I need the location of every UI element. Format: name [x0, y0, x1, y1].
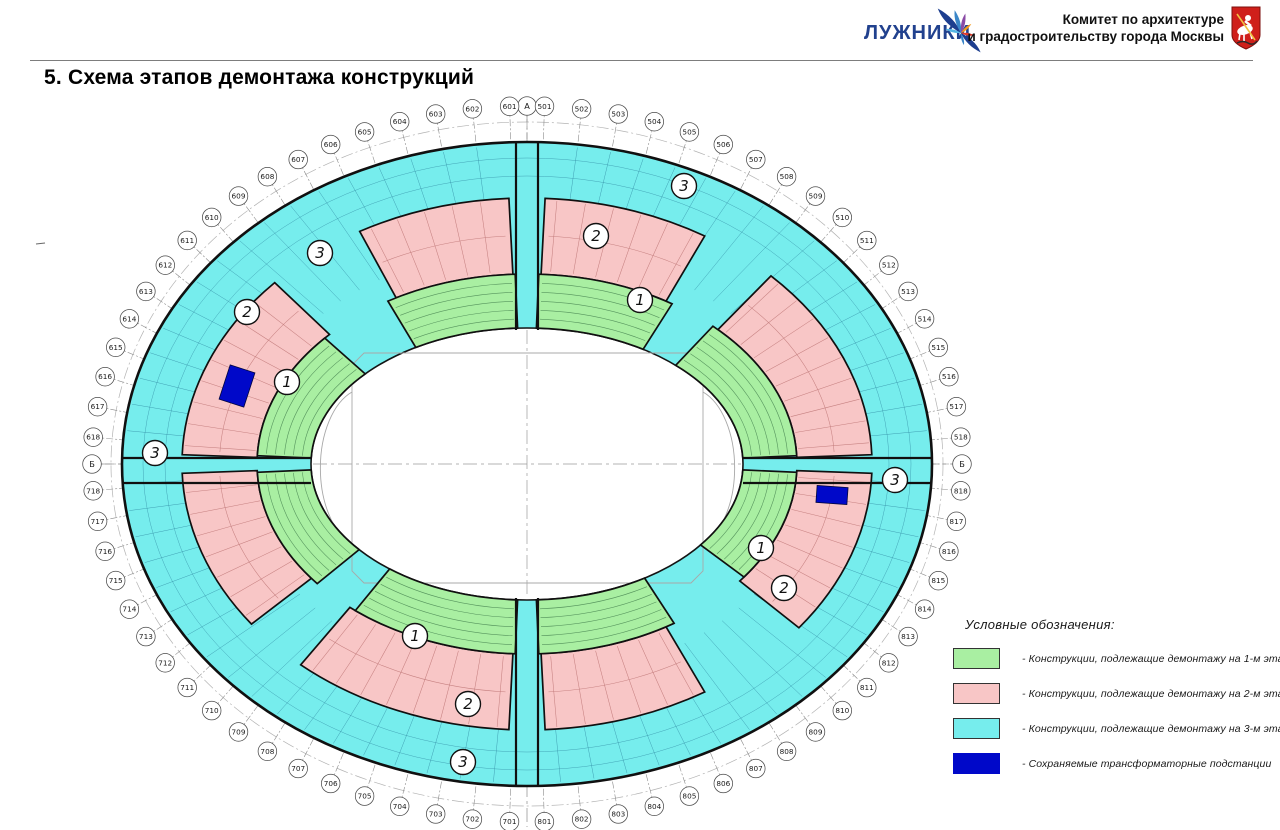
svg-text:508: 508	[780, 172, 794, 181]
axis-marker-614: 614	[120, 310, 139, 329]
legend-item-label: - Сохраняемые трансформаторные подстанци…	[1022, 758, 1271, 770]
svg-text:3: 3	[679, 177, 689, 195]
axis-marker-507: 507	[747, 150, 766, 169]
svg-text:710: 710	[205, 706, 219, 715]
svg-text:1: 1	[756, 539, 766, 557]
svg-text:811: 811	[860, 683, 874, 692]
legend-item-3: - Конструкции, подлежащие демонтажу на 3…	[953, 718, 1280, 738]
axis-marker-811: 811	[858, 678, 877, 697]
svg-text:801: 801	[537, 817, 551, 826]
legend-item-2: - Конструкции, подлежащие демонтажу на 2…	[953, 683, 1280, 703]
svg-text:713: 713	[139, 632, 153, 641]
axis-marker-805: 805	[680, 787, 699, 806]
svg-text:708: 708	[260, 747, 274, 756]
svg-text:602: 602	[465, 104, 479, 113]
svg-text:707: 707	[291, 764, 305, 773]
zone-label-stage2: 2	[772, 576, 797, 601]
axis-marker-501: 501	[535, 97, 554, 116]
demolition-stages-plan: 1111222233333А50150250350450550650750850…	[0, 0, 1280, 830]
legend-swatch-3	[953, 718, 1000, 739]
svg-text:504: 504	[647, 117, 661, 126]
svg-text:712: 712	[158, 658, 172, 667]
zone-label-stage1: 1	[749, 536, 774, 561]
axis-marker-804: 804	[645, 797, 664, 816]
svg-text:703: 703	[429, 810, 443, 819]
svg-text:816: 816	[942, 547, 956, 556]
svg-text:609: 609	[232, 192, 246, 201]
svg-text:606: 606	[324, 140, 338, 149]
axis-marker-803: 803	[609, 805, 628, 824]
axis-marker-703: 703	[426, 805, 445, 824]
axis-marker-503: 503	[609, 105, 628, 124]
axis-marker-514: 514	[915, 310, 934, 329]
axis-marker-Б: Б	[953, 455, 972, 474]
axis-marker-509: 509	[806, 187, 825, 206]
svg-text:603: 603	[429, 110, 443, 119]
svg-text:705: 705	[358, 792, 372, 801]
legend-swatch-4	[953, 753, 1000, 774]
svg-text:806: 806	[716, 779, 730, 788]
axis-marker-611: 611	[178, 231, 197, 250]
svg-text:513: 513	[901, 287, 915, 296]
svg-text:812: 812	[882, 658, 896, 667]
axis-marker-607: 607	[289, 150, 308, 169]
legend-item-label: - Конструкции, подлежащие демонтажу на 3…	[1022, 723, 1280, 735]
axis-marker-707: 707	[289, 759, 308, 778]
svg-text:716: 716	[98, 547, 112, 556]
svg-text:601: 601	[503, 102, 517, 111]
svg-text:3: 3	[150, 444, 160, 462]
legend-item-1: - Конструкции, подлежащие демонтажу на 1…	[953, 648, 1280, 668]
svg-text:804: 804	[647, 802, 661, 811]
axis-marker-506: 506	[714, 135, 733, 154]
axis-marker-710: 710	[202, 701, 221, 720]
axis-marker-807: 807	[747, 759, 766, 778]
svg-text:709: 709	[232, 727, 246, 736]
zone-label-stage3: 3	[451, 750, 476, 775]
axis-marker-717: 717	[88, 512, 107, 531]
zone-label-stage1: 1	[275, 370, 300, 395]
axis-marker-715: 715	[106, 571, 125, 590]
svg-text:615: 615	[109, 343, 123, 352]
axis-marker-808: 808	[777, 742, 796, 761]
svg-text:506: 506	[716, 140, 730, 149]
axis-marker-817: 817	[947, 512, 966, 531]
svg-text:718: 718	[86, 486, 100, 495]
svg-text:815: 815	[931, 576, 945, 585]
svg-text:514: 514	[918, 314, 932, 323]
legend-item-label: - Конструкции, подлежащие демонтажу на 2…	[1022, 688, 1280, 700]
axis-marker-618: 618	[84, 428, 103, 447]
legend-item-label: - Конструкции, подлежащие демонтажу на 1…	[1022, 653, 1280, 665]
axis-marker-508: 508	[777, 167, 796, 186]
svg-text:1: 1	[410, 627, 420, 645]
svg-text:2: 2	[463, 695, 473, 713]
svg-text:714: 714	[122, 605, 136, 614]
svg-text:512: 512	[882, 261, 896, 270]
svg-text:802: 802	[575, 815, 589, 824]
axis-marker-816: 816	[940, 542, 959, 561]
svg-text:1: 1	[282, 373, 292, 391]
axis-marker-712: 712	[156, 654, 175, 673]
svg-text:3: 3	[890, 471, 900, 489]
axis-marker-704: 704	[390, 797, 409, 816]
svg-text:711: 711	[180, 683, 194, 692]
svg-text:809: 809	[809, 727, 823, 736]
svg-text:616: 616	[98, 372, 112, 381]
svg-text:701: 701	[503, 817, 517, 826]
axis-marker-802: 802	[572, 810, 591, 829]
svg-text:610: 610	[205, 213, 219, 222]
svg-text:706: 706	[324, 779, 338, 788]
axis-marker-602: 602	[463, 100, 482, 119]
axis-marker-814: 814	[915, 600, 934, 619]
legend: Условные обозначения: - Конструкции, под…	[953, 617, 1273, 632]
zone-label-stage3: 3	[672, 174, 697, 199]
axis-marker-518: 518	[952, 428, 971, 447]
axis-marker-А: А	[518, 97, 537, 116]
axis-marker-605: 605	[355, 123, 374, 142]
axis-marker-616: 616	[96, 367, 115, 386]
legend-swatch-2	[953, 683, 1000, 704]
axis-marker-517: 517	[947, 397, 966, 416]
svg-text:3: 3	[458, 753, 468, 771]
axis-marker-609: 609	[229, 187, 248, 206]
axis-marker-504: 504	[645, 112, 664, 131]
axis-marker-812: 812	[879, 654, 898, 673]
axis-marker-608: 608	[258, 167, 277, 186]
zone-label-stage2: 2	[456, 692, 481, 717]
axis-marker-606: 606	[321, 135, 340, 154]
svg-text:702: 702	[465, 815, 479, 824]
axis-marker-813: 813	[899, 627, 918, 646]
svg-text:613: 613	[139, 287, 153, 296]
svg-text:2: 2	[779, 579, 789, 597]
svg-text:605: 605	[358, 127, 372, 136]
svg-text:1: 1	[635, 291, 645, 309]
svg-text:А: А	[524, 101, 530, 111]
axis-marker-604: 604	[390, 112, 409, 131]
axis-marker-708: 708	[258, 742, 277, 761]
svg-text:805: 805	[682, 792, 696, 801]
zone-label-stage2: 2	[584, 224, 609, 249]
zone-label-stage1: 1	[403, 624, 428, 649]
svg-text:510: 510	[835, 213, 849, 222]
svg-text:608: 608	[260, 172, 274, 181]
svg-text:517: 517	[949, 402, 963, 411]
svg-text:817: 817	[949, 517, 963, 526]
axis-marker-502: 502	[572, 100, 591, 119]
substation-rect-east	[816, 485, 848, 504]
zone-label-stage2: 2	[235, 300, 260, 325]
svg-text:516: 516	[942, 372, 956, 381]
svg-text:3: 3	[315, 244, 325, 262]
axis-marker-713: 713	[137, 627, 156, 646]
axis-marker-801: 801	[535, 812, 554, 830]
axis-marker-810: 810	[833, 701, 852, 720]
legend-title: Условные обозначения:	[965, 617, 1273, 632]
axis-marker-612: 612	[156, 256, 175, 275]
axis-marker-512: 512	[880, 256, 899, 275]
zone-label-stage3: 3	[143, 441, 168, 466]
legend-item-4: - Сохраняемые трансформаторные подстанци…	[953, 753, 1271, 773]
svg-text:704: 704	[393, 802, 407, 811]
svg-text:507: 507	[749, 155, 763, 164]
svg-text:Б: Б	[959, 459, 965, 469]
svg-text:502: 502	[575, 104, 589, 113]
axis-marker-603: 603	[426, 105, 445, 124]
svg-text:518: 518	[954, 433, 968, 442]
svg-text:715: 715	[109, 576, 123, 585]
svg-text:2: 2	[591, 227, 601, 245]
axis-marker-615: 615	[106, 338, 125, 357]
axis-marker-702: 702	[463, 810, 482, 829]
axis-marker-513: 513	[899, 282, 918, 301]
axis-marker-718: 718	[84, 482, 103, 501]
zone-label-stage3: 3	[883, 468, 908, 493]
axis-marker-709: 709	[229, 723, 248, 742]
legend-swatch-1	[953, 648, 1000, 669]
axis-marker-613: 613	[137, 282, 156, 301]
axis-marker-806: 806	[714, 774, 733, 793]
axis-marker-511: 511	[858, 231, 877, 250]
zone-label-stage1: 1	[628, 288, 653, 313]
svg-text:807: 807	[749, 764, 763, 773]
svg-text:814: 814	[918, 605, 932, 614]
svg-text:2: 2	[242, 303, 252, 321]
svg-text:618: 618	[86, 433, 100, 442]
axis-marker-815: 815	[929, 571, 948, 590]
axis-marker-706: 706	[321, 774, 340, 793]
axis-marker-701: 701	[500, 812, 519, 830]
svg-text:509: 509	[809, 192, 823, 201]
axis-marker-705: 705	[355, 787, 374, 806]
svg-text:818: 818	[954, 486, 968, 495]
svg-text:810: 810	[835, 706, 849, 715]
svg-text:803: 803	[611, 810, 625, 819]
svg-text:611: 611	[180, 236, 194, 245]
svg-text:813: 813	[901, 632, 915, 641]
axis-marker-617: 617	[88, 397, 107, 416]
axis-marker-515: 515	[929, 338, 948, 357]
svg-text:501: 501	[538, 102, 552, 111]
svg-text:515: 515	[931, 343, 945, 352]
svg-text:Б: Б	[89, 459, 95, 469]
axis-marker-809: 809	[806, 723, 825, 742]
axis-marker-Б: Б	[83, 455, 102, 474]
axis-marker-601: 601	[500, 97, 519, 116]
axis-marker-610: 610	[202, 208, 221, 227]
svg-text:808: 808	[780, 747, 794, 756]
axis-marker-510: 510	[833, 208, 852, 227]
svg-text:604: 604	[393, 117, 407, 126]
axis-marker-516: 516	[940, 367, 959, 386]
svg-text:717: 717	[91, 517, 105, 526]
axis-marker-714: 714	[120, 600, 139, 619]
zone-label-stage3: 3	[308, 241, 333, 266]
svg-text:614: 614	[122, 314, 136, 323]
svg-text:505: 505	[682, 127, 696, 136]
axis-marker-505: 505	[680, 123, 699, 142]
svg-text:511: 511	[860, 236, 874, 245]
svg-text:612: 612	[158, 261, 172, 270]
svg-text:617: 617	[91, 402, 105, 411]
svg-text:607: 607	[291, 155, 305, 164]
axis-marker-711: 711	[178, 678, 197, 697]
svg-text:503: 503	[611, 110, 625, 119]
axis-marker-818: 818	[952, 482, 971, 501]
axis-marker-716: 716	[96, 542, 115, 561]
